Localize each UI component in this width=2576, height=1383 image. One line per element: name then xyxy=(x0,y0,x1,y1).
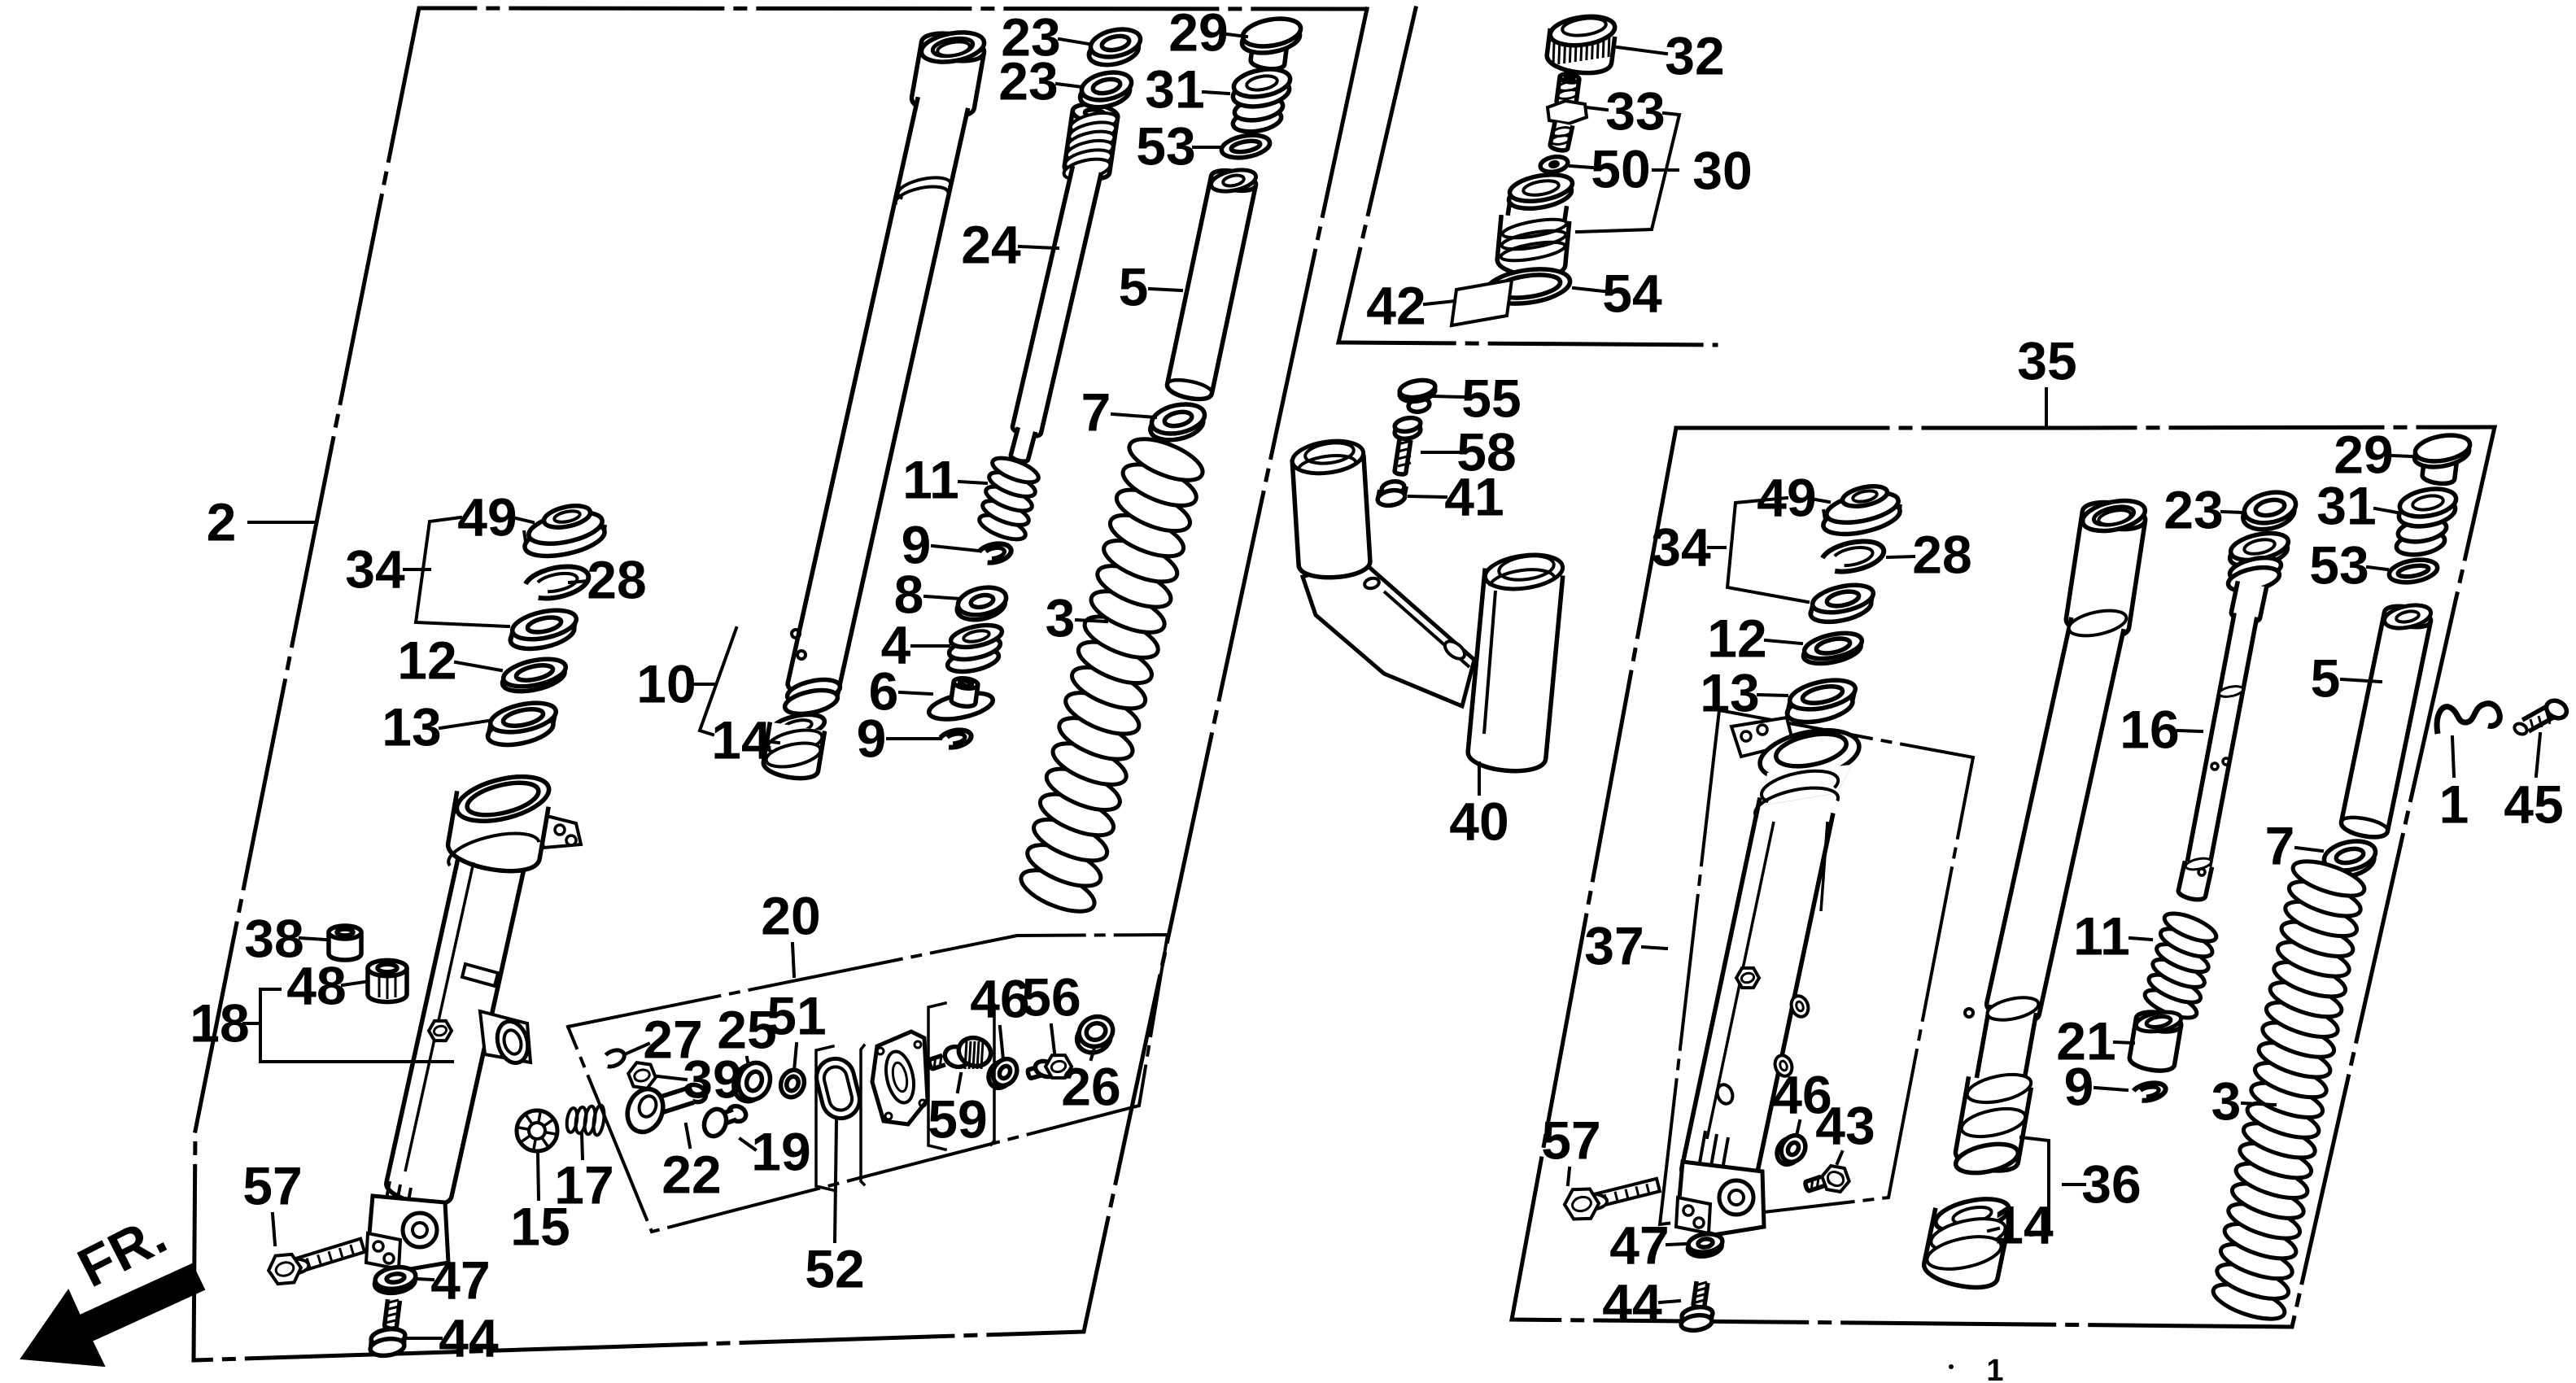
svg-text:31: 31 xyxy=(1145,59,1204,120)
svg-text:34: 34 xyxy=(345,539,405,600)
svg-text:7: 7 xyxy=(1081,382,1111,443)
svg-text:13: 13 xyxy=(1700,663,1759,723)
svg-text:49: 49 xyxy=(457,487,517,548)
svg-text:44: 44 xyxy=(1602,1273,1662,1333)
svg-text:7: 7 xyxy=(2265,816,2295,876)
svg-text:9: 9 xyxy=(2064,1057,2094,1117)
svg-text:28: 28 xyxy=(1912,525,1971,585)
svg-text:57: 57 xyxy=(242,1156,302,1216)
svg-text:19: 19 xyxy=(751,1122,810,1182)
svg-text:11: 11 xyxy=(2073,906,2130,966)
svg-text:31: 31 xyxy=(2316,476,2376,536)
svg-text:34: 34 xyxy=(1651,517,1711,578)
svg-text:53: 53 xyxy=(2309,535,2369,596)
svg-text:14: 14 xyxy=(711,710,771,770)
svg-text:35: 35 xyxy=(2017,331,2076,391)
svg-text:11: 11 xyxy=(902,450,959,510)
svg-text:36: 36 xyxy=(2081,1154,2141,1215)
svg-text:3: 3 xyxy=(2211,1071,2242,1132)
svg-text:1: 1 xyxy=(1986,1354,2003,1383)
svg-text:47: 47 xyxy=(430,1250,490,1311)
svg-text:32: 32 xyxy=(1665,26,1724,86)
svg-text:52: 52 xyxy=(805,1239,864,1299)
svg-text:9: 9 xyxy=(857,709,887,769)
svg-text:47: 47 xyxy=(1609,1215,1669,1276)
svg-text:3: 3 xyxy=(1046,588,1076,648)
svg-text:26: 26 xyxy=(1061,1057,1120,1117)
svg-text:14: 14 xyxy=(1993,1195,2054,1255)
svg-text:33: 33 xyxy=(1605,81,1665,142)
svg-text:1: 1 xyxy=(2439,774,2469,835)
svg-text:29: 29 xyxy=(1168,2,1228,63)
svg-text:57: 57 xyxy=(1541,1110,1600,1171)
svg-text:42: 42 xyxy=(1366,276,1426,336)
svg-text:5: 5 xyxy=(1119,257,1149,317)
svg-text:20: 20 xyxy=(761,886,820,946)
svg-text:28: 28 xyxy=(587,550,646,610)
svg-text:43: 43 xyxy=(1815,1096,1875,1156)
svg-text:30: 30 xyxy=(1692,141,1752,201)
svg-text:56: 56 xyxy=(1021,967,1081,1027)
svg-text:13: 13 xyxy=(382,697,441,757)
svg-text:51: 51 xyxy=(766,986,826,1046)
svg-text:55: 55 xyxy=(1461,369,1521,429)
svg-text:45: 45 xyxy=(2504,774,2563,835)
svg-text:23: 23 xyxy=(2163,480,2223,540)
svg-text:10: 10 xyxy=(636,654,696,714)
svg-text:44: 44 xyxy=(439,1308,499,1368)
svg-text:12: 12 xyxy=(1707,609,1766,669)
svg-text:41: 41 xyxy=(1444,467,1504,527)
svg-text:24: 24 xyxy=(961,215,1021,275)
svg-text:40: 40 xyxy=(1449,792,1508,852)
svg-text:53: 53 xyxy=(1136,116,1195,177)
svg-text:23: 23 xyxy=(998,51,1058,111)
svg-text:22: 22 xyxy=(661,1145,721,1205)
svg-text:50: 50 xyxy=(1591,139,1650,199)
svg-text:48: 48 xyxy=(286,956,346,1016)
svg-text:12: 12 xyxy=(397,630,456,691)
svg-text:18: 18 xyxy=(190,993,249,1054)
svg-text:5: 5 xyxy=(2311,648,2341,709)
svg-text:16: 16 xyxy=(2120,700,2179,760)
svg-text:59: 59 xyxy=(928,1089,987,1150)
svg-text:54: 54 xyxy=(1602,264,1662,324)
svg-text:2: 2 xyxy=(207,492,237,552)
svg-text:37: 37 xyxy=(1584,916,1644,976)
svg-text:17: 17 xyxy=(554,1155,613,1215)
